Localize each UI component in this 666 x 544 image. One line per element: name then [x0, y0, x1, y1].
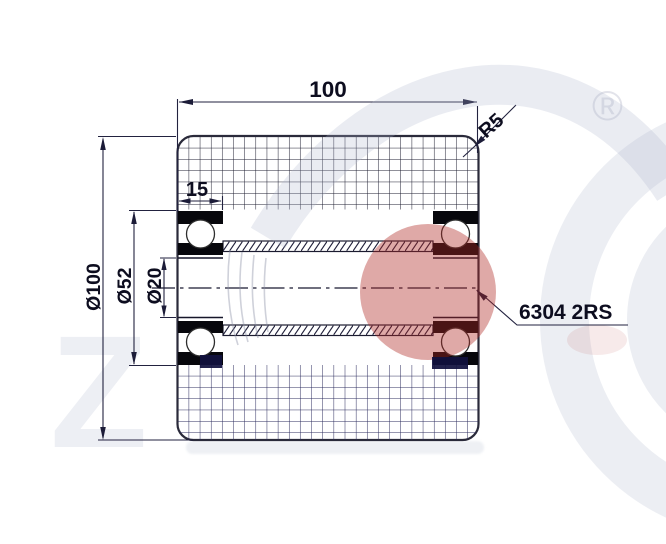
dim-width-label: 100	[309, 77, 347, 102]
arrow-icon	[161, 306, 166, 318]
dim-hub-width-label: 15	[186, 179, 208, 201]
arrow-icon	[463, 99, 477, 105]
spacer-tube-section-bottom	[223, 325, 433, 336]
technical-drawing-canvas: Z ®	[0, 0, 666, 544]
arrow-icon	[100, 427, 106, 440]
bearing-designation-label: 6304 2RS	[519, 301, 612, 324]
dim-corner-radius-label: R5	[475, 109, 509, 142]
arrow-icon	[179, 99, 193, 105]
spacer-tube-section-top	[223, 241, 433, 252]
bearing-ball-top	[187, 220, 215, 248]
dim-bore-diameter-label: Ø20	[144, 267, 166, 304]
arrow-icon	[131, 352, 137, 365]
arrow-icon	[100, 137, 106, 150]
arrow-icon	[131, 211, 137, 224]
dim-bearing-diameter-label: Ø52	[114, 267, 136, 304]
bearing-ball-bottom	[187, 328, 215, 356]
dim-outer-diameter-label: Ø100	[83, 263, 105, 311]
wheel-cross-section-drawing: 100 15 R5 Ø100 Ø52 Ø20 6304 2RS	[0, 0, 666, 544]
wheel-tread-hatch-bottom	[178, 365, 478, 440]
